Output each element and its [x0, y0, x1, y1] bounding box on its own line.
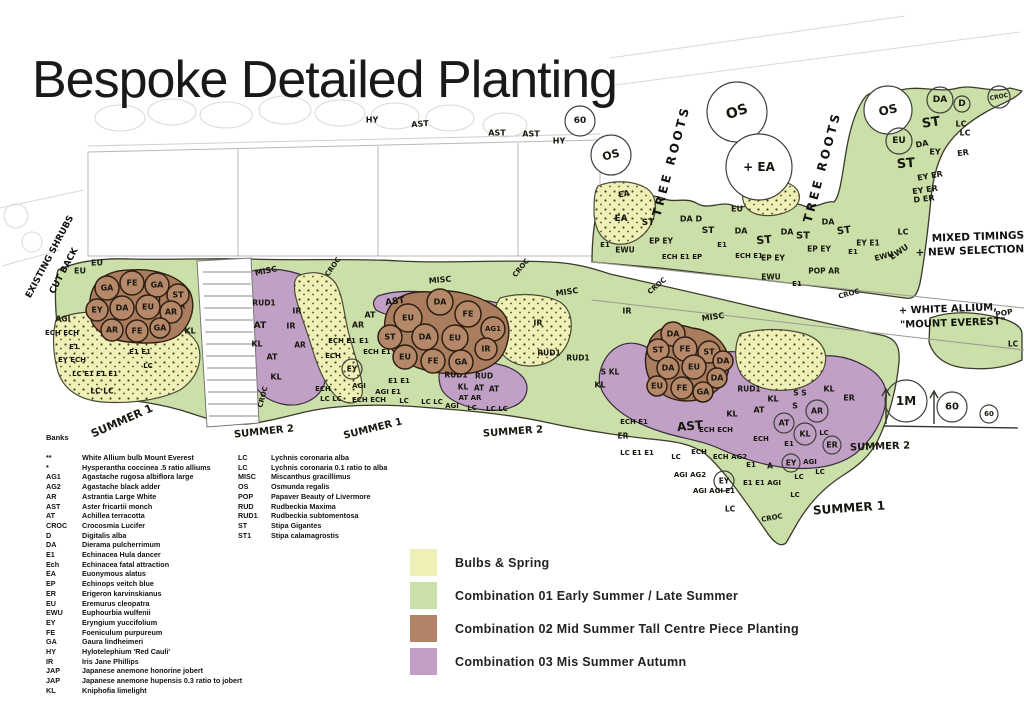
plant-code-label: AGI — [803, 458, 817, 466]
plant-code-label: E1 — [746, 461, 756, 469]
plant-code-label: EWU — [615, 246, 635, 255]
plant-code-label: EY — [786, 459, 797, 468]
legend-name: Erigeron karvinskianus — [82, 589, 162, 599]
key-swatch — [410, 615, 437, 642]
legend-row: *Hysperantha coccinea .5 ratio alliums — [46, 463, 242, 473]
legend-code: IR — [46, 657, 82, 667]
legend-name: Echinacea Hula dancer — [82, 550, 161, 560]
legend-name: Rudbeckia subtomentosa — [271, 511, 358, 521]
plant-code-label: ER — [826, 441, 838, 450]
legend-row: RUDRudbeckia Maxima — [238, 502, 387, 512]
legend-code: OS — [238, 482, 271, 492]
legend-row: DDigitalis alba — [46, 531, 242, 541]
legend-code: EU — [46, 599, 82, 609]
plant-code-label: ST — [642, 218, 655, 228]
legend-code: ST1 — [238, 531, 271, 541]
plant-code-label: GA — [151, 281, 165, 290]
plant-code-label: ECH AG2 — [713, 453, 747, 461]
plant-code-label: EU — [142, 303, 154, 312]
key-row: Combination 01 Early Summer / Late Summe… — [410, 582, 799, 609]
plant-code-label: AST — [411, 119, 430, 130]
legend-name: Japanese anemone hupensis 0.3 ratio to j… — [82, 676, 242, 686]
legend-name: Iris Jane Phillips — [82, 657, 139, 667]
plant-code-label: EU — [74, 267, 86, 276]
plant-code-label: HY — [366, 116, 379, 125]
plant-code-label: E1 E1 AGI — [743, 479, 781, 487]
legend-row: ASTAster fricartii monch — [46, 502, 242, 512]
legend-name: Eryngium yuccifolium — [82, 618, 157, 628]
plant-code-label: ECH — [315, 385, 331, 393]
plant-code-label: AGI — [352, 382, 366, 390]
legend-code: RUD1 — [238, 511, 271, 521]
plant-code-label: DA — [434, 298, 448, 307]
plant-code-label: AT — [753, 406, 765, 415]
legend-row: MISCMiscanthus gracillimus — [238, 472, 387, 482]
legend-code: LC — [238, 463, 271, 473]
legend-code: AT — [46, 511, 82, 521]
legend-code: FE — [46, 628, 82, 638]
plant-code-label: DA — [662, 364, 676, 373]
plant-code-label: EY — [91, 306, 102, 315]
plant-code-label: EWU — [761, 273, 781, 282]
plant-code-label: AST — [488, 129, 506, 138]
legend-name: Miscanthus gracillimus — [271, 472, 350, 482]
plant-code-label: LC — [956, 120, 967, 129]
legend-name: Papaver Beauty of Livermore — [271, 492, 370, 502]
plant-code-label: E1 — [600, 241, 610, 249]
legend-code: LC — [238, 453, 271, 463]
legend-name: Foeniculum purpureum — [82, 628, 162, 638]
legend-name: Japanese anemone honorine jobert — [82, 666, 203, 676]
plant-code-label: LC LC — [421, 398, 443, 406]
legend-code: DA — [46, 540, 82, 550]
plant-code-label: LC — [815, 468, 825, 476]
plant-code-label: SUMMER 2 — [850, 440, 911, 453]
plant-code-label: S — [792, 402, 798, 411]
plant-code-label: ECH ECH — [699, 426, 733, 434]
legend-row: POPPapaver Beauty of Livermore — [238, 492, 387, 502]
plant-code-label: KL — [594, 381, 605, 390]
plant-code-label: LC — [467, 404, 477, 412]
plant-code-label: AR — [165, 308, 177, 317]
plant-code-label: IR — [292, 307, 301, 316]
plant-code-label: LC — [960, 129, 971, 138]
legend-name: Dierama pulcherrimum — [82, 540, 160, 550]
plant-code-label: FE — [132, 327, 143, 336]
plant-code-label: EA — [614, 214, 627, 224]
key-label: Combination 02 Mid Summer Tall Centre Pi… — [455, 622, 799, 636]
legend-code: D — [46, 531, 82, 541]
legend-name: Crocosmia Lucifer — [82, 521, 145, 531]
plant-code-label: AGI AG2 — [674, 471, 706, 479]
plant-code-label: DA — [711, 374, 725, 383]
key-label: Combination 03 Mis Summer Autumn — [455, 655, 686, 669]
plant-code-label: AGI E1 — [375, 388, 401, 396]
plant-code-label: FE — [463, 310, 474, 319]
plant-legend: Banks **White Allium bulb Mount Everest*… — [46, 433, 69, 442]
plant-code-label: LC LC — [90, 387, 114, 396]
legend-row: CROCCrocosmia Lucifer — [46, 521, 242, 531]
legend-name: Agastache rugosa albiflora large — [82, 472, 193, 482]
legend-row: **White Allium bulb Mount Everest — [46, 453, 242, 463]
plant-code-label: EY ECH — [58, 356, 86, 364]
legend-name: Hylotelephium 'Red Cauli' — [82, 647, 170, 657]
legend-code: RUD — [238, 502, 271, 512]
legend-name: Stipa Gigantes — [271, 521, 321, 531]
plant-code-label: DA — [933, 95, 947, 105]
legend-row: AG2Agastache black adder — [46, 482, 242, 492]
legend-row: EchEchinacea fatal attraction — [46, 560, 242, 570]
legend-row: LCLychnis coronaria alba — [238, 453, 387, 463]
plant-code-label: SUMMER 1 — [89, 402, 155, 441]
plant-code-label: RUD1 — [252, 299, 275, 308]
plant-code-label: KL — [251, 340, 262, 349]
legend-name: Agastache black adder — [82, 482, 160, 492]
plant-code-label: RUD — [475, 372, 493, 381]
legend-name: Euonymous alatus — [82, 569, 146, 579]
legend-name: Hysperantha coccinea .5 ratio alliums — [82, 463, 211, 473]
plant-code-label: FE — [677, 384, 688, 393]
legend-code: Ech — [46, 560, 82, 570]
plant-code-label: IR — [622, 307, 631, 316]
legend-heading: Banks — [46, 433, 69, 442]
plant-code-label: AGI AGI E1 — [693, 487, 735, 495]
legend-row: OSOsmunda regalis — [238, 482, 387, 492]
key-swatch — [410, 648, 437, 675]
plant-code-label: ECH — [753, 435, 769, 443]
plant-code-label: DA D — [680, 215, 703, 224]
legend-row: JAPJapanese anemone honorine jobert — [46, 666, 242, 676]
plant-code-label: IR — [481, 345, 490, 354]
legend-row: EAEuonymous alatus — [46, 569, 242, 579]
legend-row: IRIris Jane Phillips — [46, 657, 242, 667]
legend-code: ST — [238, 521, 271, 531]
plant-code-label: ECH E1 — [735, 252, 763, 260]
plant-code-label: S KL — [601, 368, 620, 377]
plant-code-label: KL — [184, 327, 195, 336]
plant-code-label: GA — [154, 324, 168, 333]
plant-code-label: EP EY — [761, 254, 785, 263]
plant-code-label: ER — [618, 432, 629, 441]
legend-code: CROC — [46, 521, 82, 531]
legend-code: AST — [46, 502, 82, 512]
plant-code-label: ST — [756, 233, 773, 248]
legend-name: Digitalis alba — [82, 531, 126, 541]
plant-code-label: LC E1 E1 E1 — [72, 370, 118, 378]
plant-code-label: LC — [671, 453, 681, 461]
legend-row: EWUEuphourbia wulfenii — [46, 608, 242, 618]
plant-code-label: GA — [101, 284, 115, 293]
plant-code-label: ECH E1 — [620, 418, 648, 426]
legend-name: Aster fricartii monch — [82, 502, 152, 512]
legend-code: EA — [46, 569, 82, 579]
key-swatch — [410, 582, 437, 609]
plant-code-label: ST — [652, 346, 664, 355]
plant-code-label: E1 E1 — [129, 348, 151, 356]
legend-name: Euphourbia wulfenii — [82, 608, 151, 618]
plant-code-label: AT — [489, 385, 500, 394]
legend-code: ER — [46, 589, 82, 599]
plant-code-label: ST — [896, 156, 916, 173]
plant-code-label: LC E1 E1 — [620, 449, 654, 457]
plant-code-label: 1M — [896, 394, 916, 408]
legend-code: ** — [46, 453, 82, 463]
plant-code-label: ST — [384, 333, 396, 342]
plant-code-label: DA — [419, 333, 433, 342]
plant-code-label: GA — [697, 388, 711, 397]
plant-code-label: AT — [474, 384, 485, 393]
legend-column-2: LCLychnis coronaria albaLCLychnis corona… — [238, 453, 387, 540]
legend-name: Astrantia Large White — [82, 492, 156, 502]
plant-code-label: LC — [898, 228, 909, 237]
legend-row: LCLychnis coronaria 0.1 ratio to alba — [238, 463, 387, 473]
mixed-timings-note: + NEW SELECTION, — [915, 243, 1024, 259]
plant-code-label: DA — [116, 304, 130, 313]
key-row: Combination 02 Mid Summer Tall Centre Pi… — [410, 615, 799, 642]
plant-code-label: 60 — [574, 116, 587, 126]
plant-code-label: RUD1 — [737, 385, 760, 394]
legend-row: KLKniphofia limelight — [46, 686, 242, 696]
plant-code-label: LC — [143, 362, 153, 370]
legend-name: Echinacea fatal attraction — [82, 560, 169, 570]
plant-code-label: LC — [399, 397, 409, 405]
legend-code: * — [46, 463, 82, 473]
plant-code-label: HY — [553, 137, 566, 146]
plant-code-label: SUMMER 1 — [342, 416, 403, 441]
legend-row: EUEremurus cleopatra — [46, 599, 242, 609]
plant-code-label: AT — [266, 353, 278, 362]
legend-code: KL — [46, 686, 82, 696]
plant-code-label: EY — [929, 148, 940, 157]
legend-name: Gaura lindheimeri — [82, 637, 143, 647]
legend-name: Osmunda regalis — [271, 482, 329, 492]
plant-code-label: SUMMER 2 — [483, 424, 544, 439]
legend-row: HYHylotelephium 'Red Cauli' — [46, 647, 242, 657]
plant-code-label: EP EY — [807, 245, 831, 254]
plant-code-label: EU — [892, 136, 905, 146]
key-label: Combination 01 Early Summer / Late Summe… — [455, 589, 738, 603]
plant-code-label: ECH E1 — [328, 337, 356, 345]
legend-row: ATAchillea terracotta — [46, 511, 242, 521]
plant-code-label: E1 — [69, 343, 79, 351]
legend-name: Lychnis coronaria 0.1 ratio to alba — [271, 463, 387, 473]
plant-code-label: KL — [767, 395, 778, 404]
plant-code-label: FE — [127, 279, 138, 288]
plant-code-label: AST — [522, 130, 540, 139]
plant-code-label: ST — [836, 225, 852, 238]
plant-code-label: EY E1 — [856, 239, 880, 248]
plant-code-label: LC LC — [320, 395, 342, 403]
legend-row: ST1Stipa calamagrostis — [238, 531, 387, 541]
plant-code-label: A — [767, 462, 773, 471]
plant-code-label: E1 — [717, 241, 727, 249]
plant-code-label: D ER — [913, 193, 935, 204]
plant-code-label: ST — [796, 231, 810, 242]
plant-code-label: LC — [790, 491, 800, 499]
steps — [197, 258, 259, 427]
legend-code: GA — [46, 637, 82, 647]
plant-code-label: ECH ECH — [45, 329, 79, 337]
plant-code-label: DA — [781, 228, 795, 237]
legend-row: STStipa Gigantes — [238, 521, 387, 531]
plant-code-label: AR — [352, 321, 364, 330]
plant-code-label: AR — [294, 341, 306, 350]
legend-name: Rudbeckia Maxima — [271, 502, 336, 512]
key-row: Combination 03 Mis Summer Autumn — [410, 648, 799, 675]
legend-row: RUD1Rudbeckia subtomentosa — [238, 511, 387, 521]
plant-code-label: E1 — [848, 248, 858, 256]
plant-code-label: + EA — [743, 160, 775, 174]
legend-code: JAP — [46, 666, 82, 676]
legend-code: EP — [46, 579, 82, 589]
legend-row: FEFoeniculum purpureum — [46, 628, 242, 638]
plant-code-label: AT — [254, 321, 267, 331]
legend-row: JAPJapanese anemone hupensis 0.3 ratio t… — [46, 676, 242, 686]
wall-panels — [88, 134, 600, 256]
plant-code-label: KL — [726, 410, 737, 419]
legend-code: EY — [46, 618, 82, 628]
colour-key: Bulbs & SpringCombination 01 Early Summe… — [410, 549, 799, 675]
plant-code-label: SUMMER 2 — [233, 423, 294, 440]
plant-code-label: SUMMER 1 — [812, 498, 885, 517]
plant-code-label: RUD1 — [566, 354, 589, 363]
plant-code-label: AT AR — [459, 394, 483, 402]
plant-code-label: ER — [957, 148, 970, 159]
plant-code-label: EU — [688, 363, 700, 372]
plant-code-label: FE — [428, 357, 439, 366]
plant-code-label: DA — [822, 218, 836, 227]
plant-code-label: AGI — [445, 402, 459, 410]
legend-code: E1 — [46, 550, 82, 560]
plant-code-label: AG1 — [485, 325, 501, 333]
plant-code-label: LC — [725, 505, 736, 514]
plant-code-label: E1 — [792, 280, 802, 288]
legend-code: EWU — [46, 608, 82, 618]
legend-name: Eremurus cleopatra — [82, 599, 150, 609]
plant-code-label: ECH ECH — [352, 396, 386, 404]
plant-code-label: GA — [455, 358, 469, 367]
plant-code-label: AGI — [56, 315, 71, 324]
legend-name: Achillea terracotta — [82, 511, 145, 521]
plant-code-label: IR — [533, 319, 542, 328]
legend-column-1: **White Allium bulb Mount Everest*Hysper… — [46, 453, 242, 696]
plant-code-label: ECH E1 EP — [662, 253, 702, 261]
plant-code-label: E1 — [784, 440, 794, 448]
plant-code-label: KL — [458, 383, 469, 392]
key-swatch — [410, 549, 437, 576]
plant-code-label: D — [958, 99, 965, 109]
plant-code-label: S S — [793, 389, 806, 398]
plant-code-label: POP AR — [808, 267, 840, 276]
legend-code: AG1 — [46, 472, 82, 482]
legend-row: DADierama pulcherrimum — [46, 540, 242, 550]
plant-code-label: AR — [106, 326, 118, 335]
plant-code-label: LC — [819, 429, 829, 437]
plant-code-label: EU — [449, 334, 461, 343]
legend-row: ARAstrantia Large White — [46, 492, 242, 502]
plant-code-label: KL — [270, 373, 281, 382]
legend-row: ERErigeron karvinskianus — [46, 589, 242, 599]
plant-code-label: AT — [364, 311, 376, 320]
plant-code-label: AR — [811, 407, 823, 416]
plant-code-label: EP EY — [649, 237, 673, 246]
legend-code: AG2 — [46, 482, 82, 492]
legend-row: AG1Agastache rugosa albiflora large — [46, 472, 242, 482]
plant-code-label: AT — [778, 419, 790, 428]
plant-code-label: FE — [680, 345, 691, 354]
legend-name: Stipa calamagrostis — [271, 531, 339, 541]
plant-code-label: E1 — [359, 337, 369, 345]
legend-code: AR — [46, 492, 82, 502]
plant-code-label: ECH — [691, 448, 707, 456]
legend-row: EYEryngium yuccifolium — [46, 618, 242, 628]
page-title: Bespoke Detailed Planting — [32, 50, 617, 110]
plant-code-label: LC LC — [486, 405, 508, 413]
legend-code: POP — [238, 492, 271, 502]
plant-code-label: DA — [667, 330, 681, 339]
plant-code-label: EY — [719, 477, 730, 486]
mixed-timings-note: MIXED TIMINGS — [932, 229, 1024, 244]
plant-code-label: ER — [843, 394, 855, 403]
legend-code: HY — [46, 647, 82, 657]
key-label: Bulbs & Spring — [455, 556, 549, 570]
plant-code-label: 60 — [945, 402, 959, 413]
key-row: Bulbs & Spring — [410, 549, 799, 576]
legend-row: EPEchinops veitch blue — [46, 579, 242, 589]
plant-code-label: EY — [347, 365, 358, 374]
legend-row: E1Echinacea Hula dancer — [46, 550, 242, 560]
plant-code-label: ST — [921, 114, 941, 131]
legend-name: Kniphofia limelight — [82, 686, 147, 696]
plant-code-label: EU — [731, 205, 743, 214]
plant-code-label: IR — [286, 322, 295, 331]
plant-code-label: ST — [172, 291, 184, 300]
plant-code-label: KL — [799, 430, 810, 439]
plant-code-label: ST — [702, 226, 715, 236]
plant-code-label: 60 — [984, 410, 994, 418]
plant-code-label: LC — [1008, 340, 1019, 349]
plant-code-label: KL — [823, 385, 834, 394]
plant-code-label: ECH — [325, 352, 341, 360]
legend-name: Lychnis coronaria alba — [271, 453, 349, 463]
planting-plan-page: 60OSOS+ EAOSDADCROCEU1M6060STLCLCDAEYERS… — [0, 0, 1024, 703]
legend-code: MISC — [238, 472, 271, 482]
plant-code-label: EU — [91, 259, 103, 268]
legend-row: GAGaura lindheimeri — [46, 637, 242, 647]
plant-code-label: RUD1 — [537, 349, 560, 358]
plant-code-label: EU — [402, 314, 414, 323]
plant-code-label: DA — [717, 357, 731, 366]
plant-code-label: LC — [794, 473, 804, 481]
plant-code-label: E1 E1 — [388, 377, 410, 385]
plant-code-label: EU — [399, 353, 411, 362]
legend-name: White Allium bulb Mount Everest — [82, 453, 194, 463]
plant-code-label: DA — [735, 227, 749, 236]
plant-code-label: ST — [703, 348, 715, 357]
legend-name: Echinops veitch blue — [82, 579, 154, 589]
legend-code: JAP — [46, 676, 82, 686]
plant-code-label: EU — [651, 382, 663, 391]
